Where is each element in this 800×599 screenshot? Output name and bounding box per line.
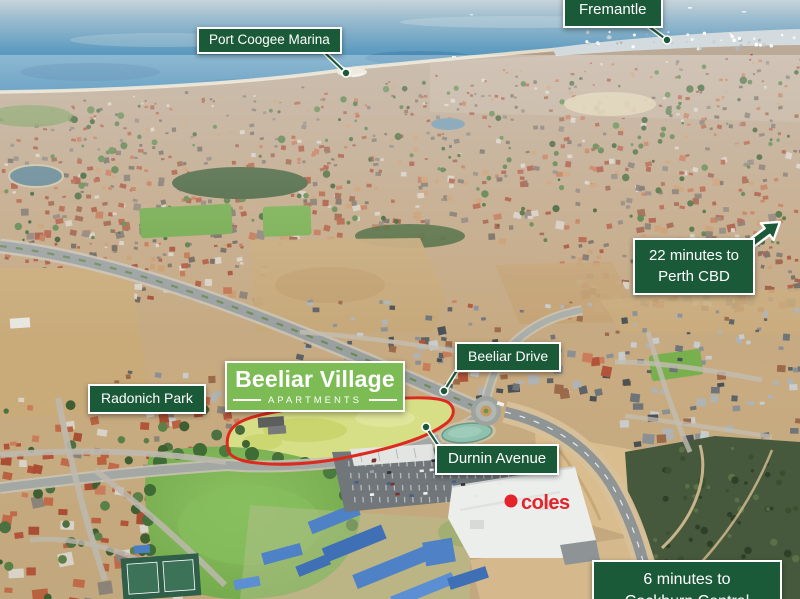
brand-subtitle-row: APARTMENTS	[233, 395, 397, 406]
label-cockburn-line2: Cockburn Central	[600, 591, 774, 599]
brand-subtitle: APARTMENTS	[268, 395, 362, 406]
label-port-coogee-marina: Port Coogee Marina	[197, 27, 342, 54]
brand-label-beeliar-village: Beeliar Village APARTMENTS	[225, 361, 405, 412]
label-cockburn-central: 6 minutes to Cockburn Central	[592, 560, 782, 599]
label-perth-cbd: 22 minutes to Perth CBD	[633, 238, 755, 295]
label-beeliar-drive: Beeliar Drive	[455, 342, 561, 372]
label-perth-cbd-line2: Perth CBD	[643, 267, 745, 288]
brand-rule-left	[233, 399, 261, 401]
label-port-coogee-text: Port Coogee Marina	[209, 32, 330, 47]
label-perth-cbd-line1: 22 minutes to	[643, 246, 745, 267]
brand-rule-right	[369, 399, 397, 401]
label-fremantle: Fremantle	[563, 0, 663, 28]
label-durnin-avenue: Durnin Avenue	[435, 444, 559, 475]
label-beeliar-drive-text: Beeliar Drive	[468, 348, 548, 364]
label-fremantle-text: Fremantle	[579, 1, 647, 18]
label-radonich-park-text: Radonich Park	[101, 390, 193, 406]
brand-title: Beeliar Village	[235, 368, 395, 391]
label-cockburn-line1: 6 minutes to	[600, 569, 774, 591]
aerial-map: coles	[0, 0, 800, 599]
label-radonich-park: Radonich Park	[88, 384, 206, 414]
label-durnin-avenue-text: Durnin Avenue	[448, 450, 546, 467]
coles-sign-text: coles	[521, 492, 570, 514]
atmospheric-haze	[0, 55, 800, 345]
aerial-photo: coles	[0, 0, 800, 599]
